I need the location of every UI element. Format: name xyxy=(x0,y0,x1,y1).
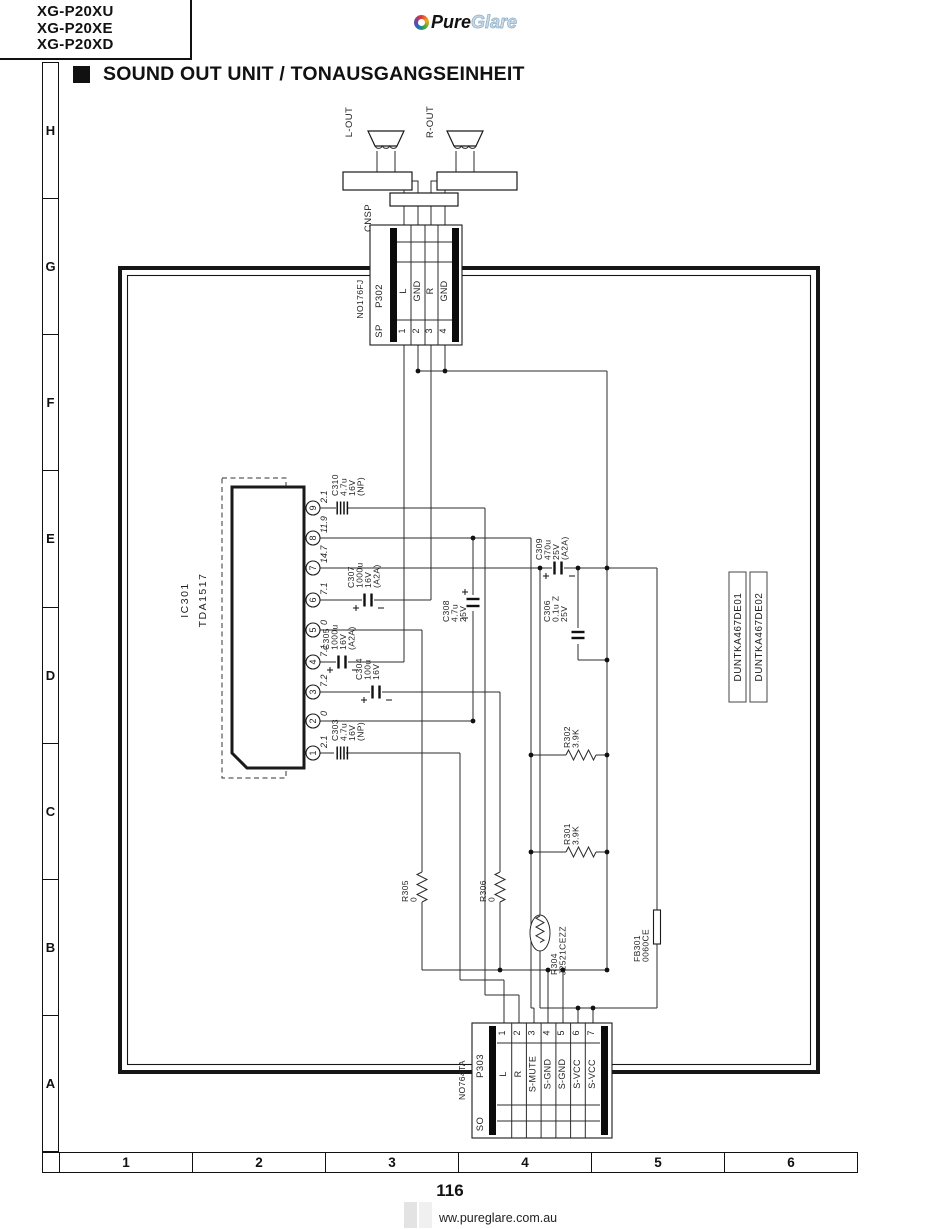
ic301-ref: IC301 xyxy=(179,582,191,618)
svg-text:25V: 25V xyxy=(458,606,468,622)
resistor-r301: R301 3.9K xyxy=(562,823,596,857)
svg-text:2.1: 2.1 xyxy=(319,490,329,504)
resistor-r302: R302 3.9K xyxy=(562,726,596,760)
svg-text:3: 3 xyxy=(308,689,318,694)
svg-text:16V: 16V xyxy=(371,664,381,680)
svg-text:7: 7 xyxy=(586,1030,596,1035)
svg-text:7: 7 xyxy=(308,565,318,570)
wires xyxy=(320,345,657,1023)
svg-text:L: L xyxy=(498,1071,508,1076)
svg-text:0: 0 xyxy=(409,897,419,902)
p302-tag: SP xyxy=(374,324,385,337)
connector-p303: NO764TA P303 SO 1 2 3 4 5 6 7 L R S-MUTE… xyxy=(457,1023,612,1138)
p302-pin-number: 4 xyxy=(438,328,448,333)
cap-c305: C305 1000u 16V (A2A) xyxy=(321,624,358,673)
svg-text:5: 5 xyxy=(556,1030,566,1035)
cap-c304: C304 100u 16V xyxy=(354,658,392,703)
svg-text:2: 2 xyxy=(512,1030,522,1035)
svg-text:1: 1 xyxy=(497,1030,507,1035)
svg-text:0: 0 xyxy=(319,620,329,625)
speaker-right-label: R-OUT xyxy=(425,106,436,138)
board-id: DUNTKA467DE01 xyxy=(733,593,744,682)
svg-text:1: 1 xyxy=(308,750,318,755)
svg-text:(NP): (NP) xyxy=(356,722,366,741)
svg-text:R: R xyxy=(513,1070,523,1077)
pcb-frame xyxy=(120,268,818,1072)
svg-text:(NP): (NP) xyxy=(356,477,366,496)
ic301-pin-voltages: 2.1 0 7.2 7.1 0 7.1 14.7 11.9 2.1 xyxy=(319,490,329,749)
svg-text:25V: 25V xyxy=(559,606,569,622)
watermark: ww.pureglare.com.au xyxy=(404,1202,557,1228)
resistor-r306: R306 0 xyxy=(478,872,505,902)
page-number: 116 xyxy=(380,1181,520,1201)
svg-text:7.1: 7.1 xyxy=(319,582,329,595)
svg-text:0: 0 xyxy=(319,711,329,716)
cap-c307: C307 1000u 16V (A2A) xyxy=(346,562,384,611)
p302-pin-number: 1 xyxy=(397,328,407,333)
svg-text:J2521CEZZ: J2521CEZZ xyxy=(558,926,568,975)
svg-text:S-GND: S-GND xyxy=(557,1059,567,1090)
resistor-r304: R304 J2521CEZZ xyxy=(530,915,568,975)
svg-text:9: 9 xyxy=(308,505,318,510)
p302-pin-signal: GND xyxy=(439,280,449,301)
svg-text:8: 8 xyxy=(308,535,318,540)
p302-pin-signal: L xyxy=(398,288,408,293)
speaker-left-label: L-OUT xyxy=(344,107,355,138)
ferrite-bead-fb301: FB301 0060CE xyxy=(632,910,661,962)
ic301-part: TDA1517 xyxy=(197,573,209,628)
p302-pin-signal: R xyxy=(425,287,435,294)
svg-text:7.2: 7.2 xyxy=(319,674,329,687)
svg-text:0: 0 xyxy=(487,897,497,902)
svg-text:2: 2 xyxy=(308,718,318,723)
p303-ref: P303 xyxy=(475,1054,486,1078)
p302-part-number: NO176FJ xyxy=(355,279,365,318)
svg-text:(A2A): (A2A) xyxy=(347,626,357,650)
p303-tag: SO xyxy=(475,1117,486,1132)
p302-pin-number: 2 xyxy=(411,328,421,333)
junction-dots xyxy=(416,369,610,1011)
resistor-r305: R305 0 xyxy=(400,872,427,902)
svg-text:S-VCC: S-VCC xyxy=(587,1059,597,1089)
watermark-bar xyxy=(404,1202,417,1228)
speaker-right: R-OUT xyxy=(425,106,517,225)
svg-text:4: 4 xyxy=(308,659,318,664)
svg-text:3.9K: 3.9K xyxy=(571,729,581,748)
service-manual-page: XG-P20XU XG-P20XE XG-P20XD PureGlare SOU… xyxy=(0,0,950,1229)
p302-pin-number: 3 xyxy=(424,328,434,333)
svg-text:6: 6 xyxy=(571,1030,581,1035)
p302-ref: P302 xyxy=(374,284,385,308)
svg-text:14.7: 14.7 xyxy=(319,544,329,563)
watermark-site-text: ww.pureglare.com.au xyxy=(439,1211,557,1228)
svg-text:3: 3 xyxy=(527,1030,537,1035)
board-id-labels: DUNTKA467DE01 DUNTKA467DE02 xyxy=(729,572,767,702)
svg-text:S-VCC: S-VCC xyxy=(572,1059,582,1089)
ic301: IC301 TDA1517 1 2 3 4 5 6 7 8 xyxy=(179,478,329,778)
watermark-bar xyxy=(419,1202,432,1228)
cap-c308: C308 4.7u 25V xyxy=(441,589,480,622)
board-id: DUNTKA467DE02 xyxy=(754,593,765,682)
speaker-left: L-OUT xyxy=(343,107,418,225)
svg-text:2.1: 2.1 xyxy=(319,735,329,749)
ic301-pins: 1 2 3 4 5 6 7 8 9 xyxy=(304,501,320,760)
svg-text:4: 4 xyxy=(542,1030,552,1035)
sound-out-unit-schematic: L-OUT R-OUT CNSP NO176FJ xyxy=(0,0,950,1229)
svg-text:(A2A): (A2A) xyxy=(372,564,382,588)
svg-text:6: 6 xyxy=(308,597,318,602)
svg-text:S-GND: S-GND xyxy=(543,1059,553,1090)
svg-text:S-MUTE: S-MUTE xyxy=(528,1056,538,1092)
p302-pin-signal: GND xyxy=(412,280,422,301)
svg-text:11.9: 11.9 xyxy=(319,516,329,533)
svg-text:3.9K: 3.9K xyxy=(571,826,581,845)
svg-text:(A2A): (A2A) xyxy=(560,536,570,560)
p303-part-number: NO764TA xyxy=(457,1060,467,1100)
svg-text:5: 5 xyxy=(308,627,318,632)
svg-text:0060CE: 0060CE xyxy=(641,929,651,962)
connector-p302: NO176FJ P302 SP 1 2 3 4 L GND R GND xyxy=(355,225,462,345)
